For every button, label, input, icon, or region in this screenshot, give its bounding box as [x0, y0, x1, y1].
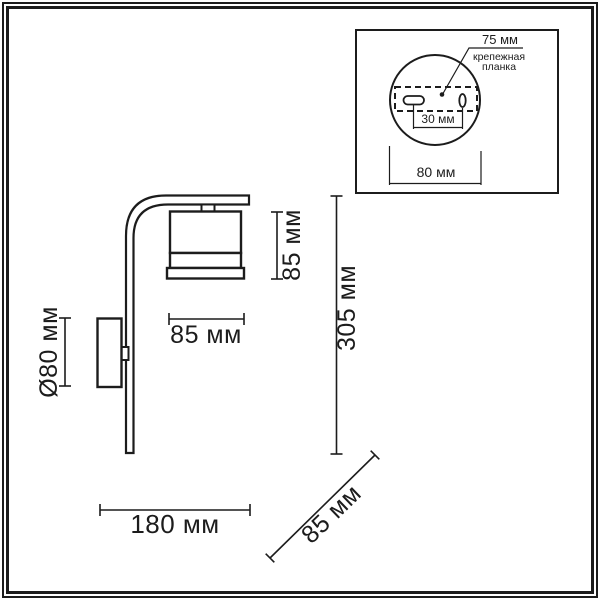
wall-backplate: [98, 319, 122, 388]
lamp-shade-body: [170, 212, 241, 254]
inset-backplate-width-label: 80 мм: [417, 164, 456, 180]
dimension-drawing-canvas: 85 мм 85 мм 305 мм Ø80 мм 180 мм: [0, 0, 600, 600]
lamp-shade-bottom-flange: [167, 268, 244, 279]
inset-bracket-label-line2: планка: [482, 61, 516, 73]
dim-overall-depth-label: 85 мм: [296, 479, 367, 549]
dim-overall-height-label: 305 мм: [333, 265, 361, 351]
dim-shade-height-label: 85 мм: [278, 209, 306, 281]
technical-drawing-page: 85 мм 85 мм 305 мм Ø80 мм 180 мм: [0, 0, 600, 600]
lamp-shade-band: [170, 253, 241, 268]
inset-hole-pitch-label: 75 мм: [482, 32, 518, 47]
dim-backplate-diameter-label: Ø80 мм: [35, 306, 63, 398]
inset-slot-spacing-label: 30 мм: [421, 112, 454, 126]
dim-shade-width-label: 85 мм: [170, 321, 242, 349]
dim-overall-width-label: 180 мм: [130, 509, 219, 539]
